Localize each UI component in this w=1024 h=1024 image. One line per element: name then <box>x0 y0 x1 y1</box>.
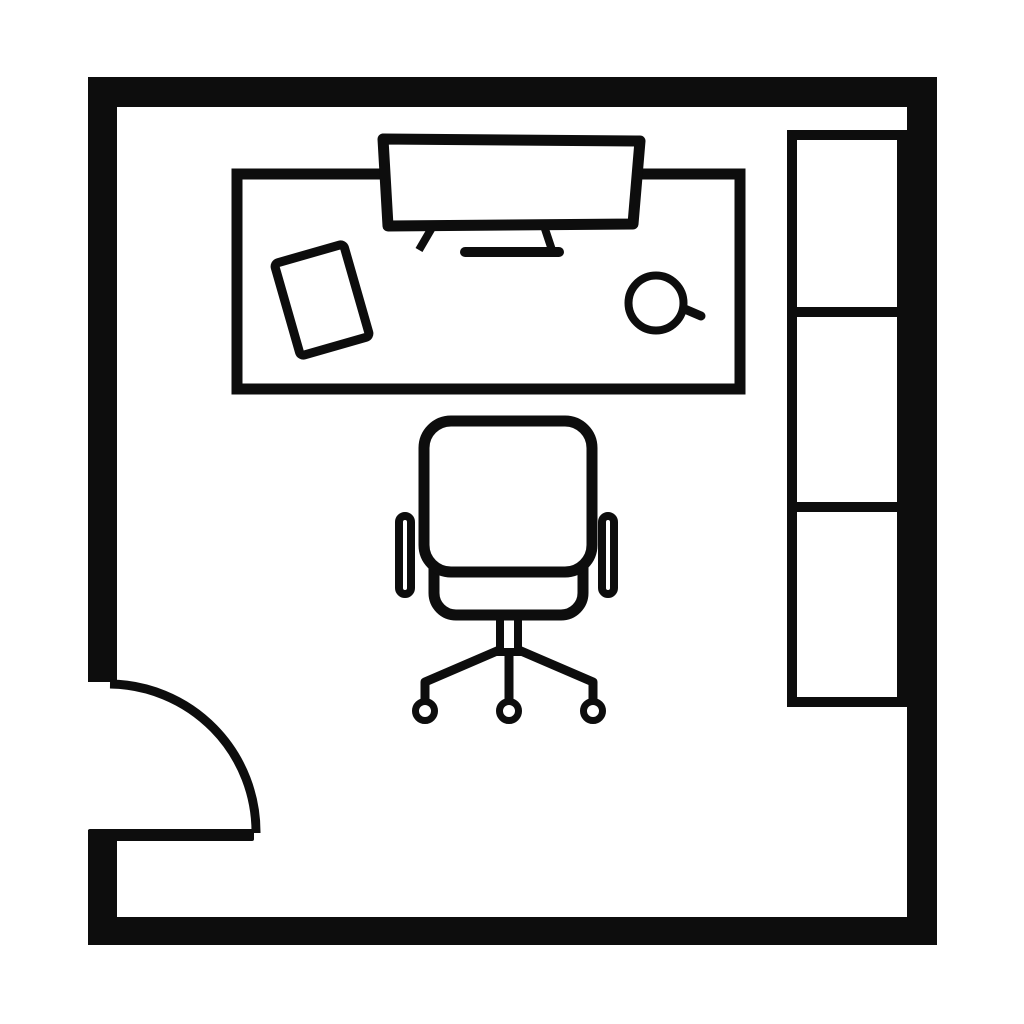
shelf-outline <box>792 135 902 702</box>
office-floor-plan <box>0 0 1024 1024</box>
chair-leg-right <box>514 648 593 699</box>
shelf-unit <box>787 135 904 702</box>
door-leaf <box>88 829 254 841</box>
chair-armrest-right <box>602 516 614 594</box>
office-chair <box>399 421 614 721</box>
chair-caster-right <box>584 702 603 721</box>
chair-caster-middle <box>500 702 519 721</box>
monitor-screen <box>383 139 640 226</box>
chair-armrest-left <box>399 516 411 594</box>
door <box>88 684 256 841</box>
door-swing-arc-icon <box>110 684 256 833</box>
mouse-body <box>629 276 684 331</box>
wall-bottom <box>88 917 937 945</box>
wall-right <box>907 77 937 945</box>
chair-caster-left <box>416 702 435 721</box>
chair-leg-left <box>425 648 504 699</box>
chair-backrest <box>424 421 592 572</box>
wall-left-upper <box>88 77 117 682</box>
wall-top <box>88 77 937 107</box>
wall-left-lower <box>88 830 117 945</box>
floor-plan-drawing <box>0 0 1024 1024</box>
